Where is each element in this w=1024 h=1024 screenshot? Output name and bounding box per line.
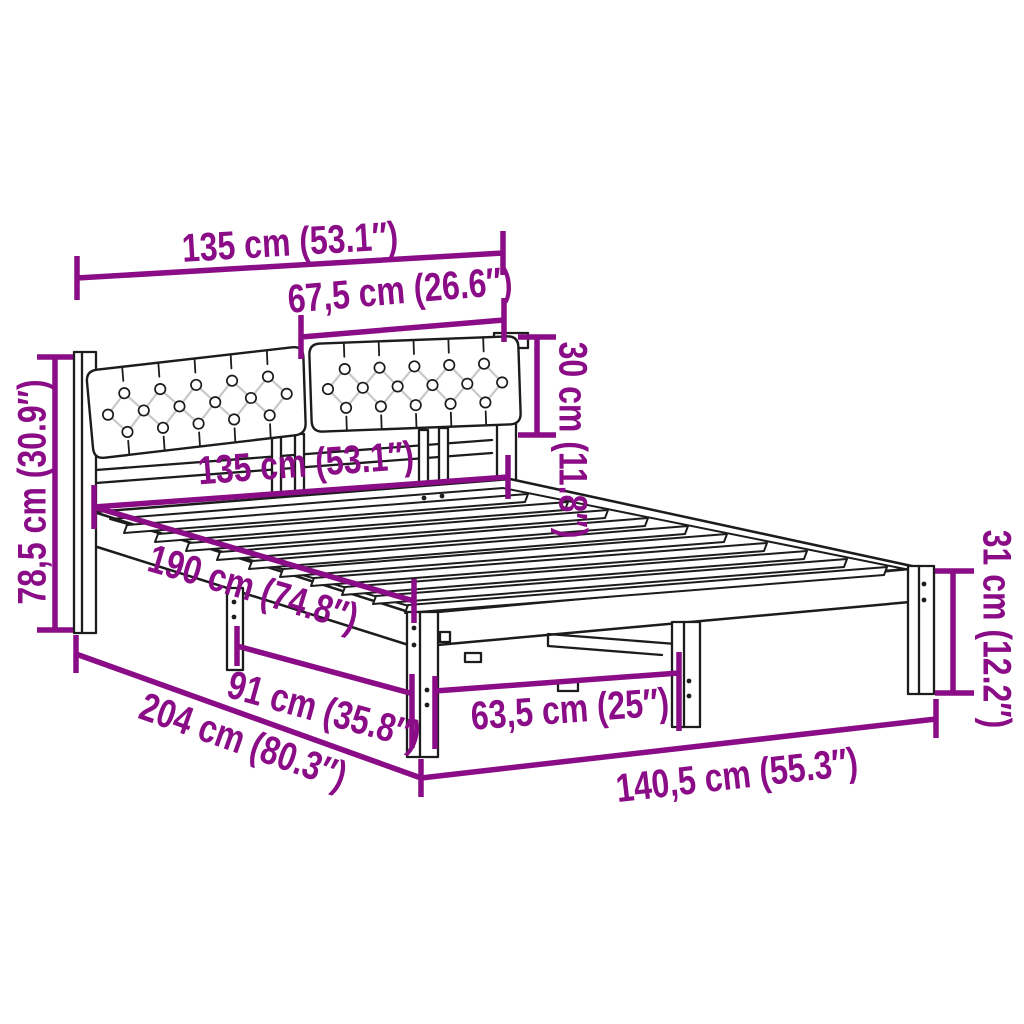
tufting-button [246, 393, 256, 403]
center-support-beam [548, 634, 676, 655]
tufting-button [210, 397, 220, 407]
tufting-button [193, 418, 203, 428]
cushion-crease [199, 432, 200, 445]
tufting-button [281, 389, 291, 399]
tufting-button [497, 377, 507, 387]
tufting-button [480, 397, 490, 407]
tufting-button [158, 423, 168, 433]
tufting-button [462, 379, 472, 389]
cushion-crease [195, 359, 196, 372]
tufting-button [323, 384, 333, 394]
cushion-crease [158, 364, 159, 377]
tufting-button [174, 401, 184, 411]
tufting-button [376, 401, 386, 411]
tufting-button [374, 363, 384, 373]
dimension-label-headboard-height: 78,5 cm (30.9″) [11, 379, 56, 604]
cushion-crease [270, 424, 271, 437]
dim-line-foot-leg-height [935, 571, 974, 693]
dimension-label-foot-leg-height: 31 cm (12.2″) [974, 530, 1019, 729]
tufting-button [341, 403, 351, 413]
support-bracket [465, 653, 481, 662]
tufting-button [358, 383, 368, 393]
tufting-button [264, 410, 274, 420]
tufting-button [227, 376, 237, 386]
tufting-button [444, 360, 454, 370]
tufting-button [122, 427, 132, 437]
tufting-button [409, 361, 419, 371]
tufting-button [103, 409, 113, 419]
tufting-button [479, 359, 489, 369]
cushion-crease [231, 355, 232, 368]
tufting-button [229, 414, 239, 424]
tufting-button [139, 405, 149, 415]
tufting-button [427, 380, 437, 390]
tufting-button [191, 380, 201, 390]
cushion-crease [128, 441, 129, 454]
tufting-button [263, 371, 273, 381]
dimension-label-cushion-height: 30 cm (11.8″) [550, 342, 595, 539]
cushion-crease [164, 437, 165, 450]
diagram-canvas: 135 cm (53.1″) 67,5 cm (26.6″) 30 cm (11… [0, 0, 1024, 1024]
tufting-button [411, 400, 421, 410]
tufting-button [155, 384, 165, 394]
bed-frame-illustration [0, 0, 1024, 1024]
tufting-button [392, 381, 402, 391]
tufting-button [340, 364, 350, 374]
tufting-button [445, 399, 455, 409]
headboard-cushion-right [309, 336, 520, 431]
cushion-crease [267, 351, 268, 364]
leg-bracket [440, 632, 450, 642]
tufting-button [119, 388, 129, 398]
cushion-crease [235, 428, 236, 441]
cushion-outline [309, 336, 520, 431]
leg-foot-right [908, 566, 934, 694]
cushion-crease [122, 368, 123, 381]
